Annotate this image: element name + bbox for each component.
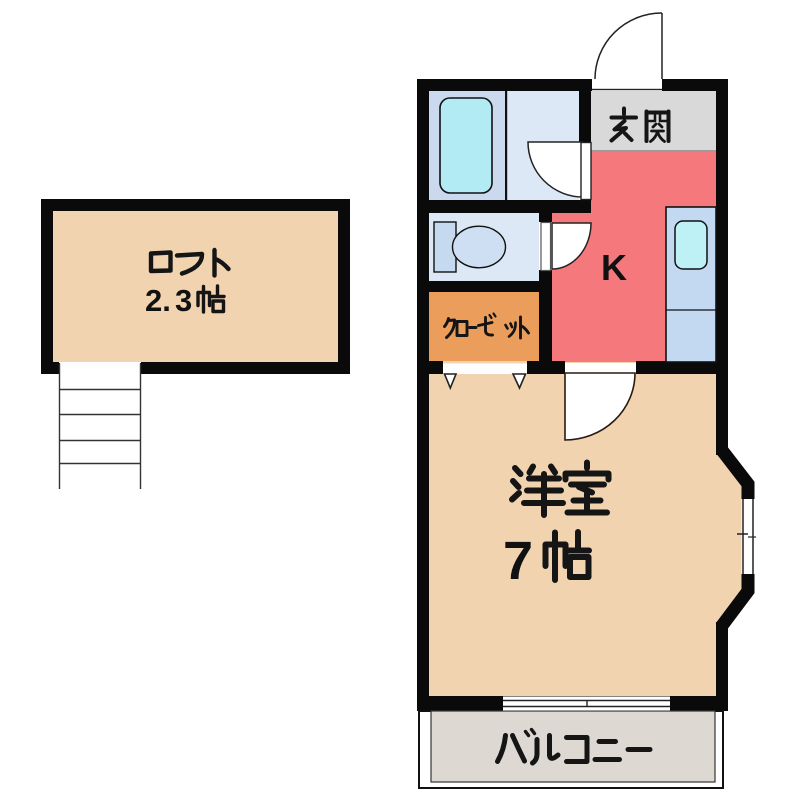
svg-text:7: 7 (503, 531, 533, 591)
svg-text:2.: 2. (145, 283, 171, 318)
svg-text:3: 3 (175, 283, 192, 318)
svg-text:K: K (601, 247, 627, 288)
